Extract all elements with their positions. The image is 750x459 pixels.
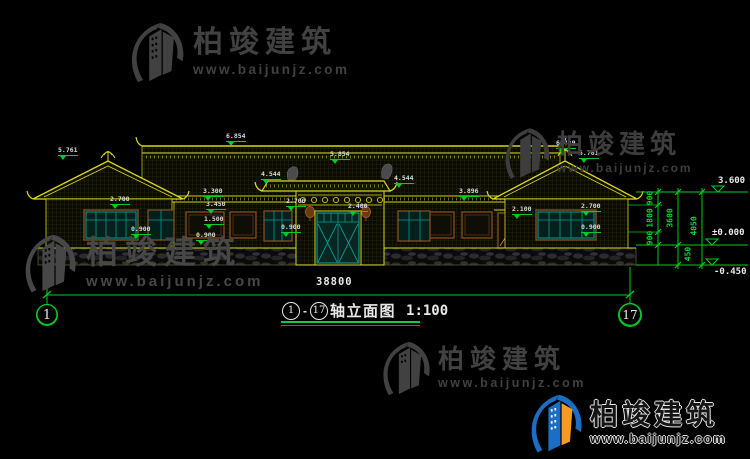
watermark-top-right: 柏竣建筑 www.baijunjz.com [502,124,693,182]
title-underline-2 [281,325,420,326]
elevation-marker: 4.544 [394,174,414,188]
brand-url: www.baijunjz.com [86,273,263,290]
brand-name: 柏竣建筑 [438,346,586,373]
title-axis-from-bubble: 1 [282,302,300,320]
brand-name: 柏竣建筑 [590,400,726,429]
level-symbols [706,186,724,265]
title-axis-to-bubble: 17 [310,302,328,320]
axis-bubble-1: 1 [36,304,58,326]
level-marker-value: 3.600 [718,176,745,186]
watermark-top-left: 柏竣建筑 www.baijunjz.com [128,18,350,86]
brand-logo-colored: 柏竣建筑 www.baijunjz.com [528,390,726,456]
brand-name: 柏竣建筑 [193,27,350,59]
elevation-marker: 4.544 [261,170,281,184]
brand-url: www.baijunjz.com [590,431,726,446]
elevation-marker: 6.854 [226,132,246,146]
elevation-marker: 3.450 [206,200,226,214]
brand-name: 柏竣建筑 [86,236,263,270]
elevation-marker: 0.900 [281,223,301,237]
vertical-dimension-value: 1800 [646,208,655,227]
title-underline [281,321,420,323]
vertical-dimension-value: 450 [684,247,693,261]
vertical-dimension-value: 4050 [690,216,699,235]
elevation-marker: 5.854 [330,150,350,164]
elevation-marker: 3.300 [203,187,223,201]
elevation-marker: 2.700 [286,197,306,211]
level-marker-value: ±0.000 [712,228,745,238]
brand-logo-icon [502,124,550,182]
brand-logo-icon [22,220,76,306]
vertical-dimension-value: 900 [646,191,655,205]
brand-logo-icon [380,332,430,404]
ridge-ornament [101,151,115,161]
brand-logo-icon [528,390,582,456]
brand-url: www.baijunjz.com [438,376,586,390]
brand-url: www.baijunjz.com [557,161,693,175]
elevation-marker: 3.896 [459,187,479,201]
watermark-middle: 柏竣建筑 www.baijunjz.com [22,220,263,306]
total-width-dimension: 38800 [316,276,353,288]
title-text: 轴立面图 [330,300,396,321]
vertical-dimension-value: 900 [646,231,655,245]
brand-logo-icon [128,18,184,86]
elevation-marker: 2.700 [581,202,601,216]
cad-canvas: 38800 1 17 1 - 17 轴立面图 1:100 柏竣建筑 www.ba… [0,0,750,459]
title-scale: 1:100 [406,303,448,319]
elevation-marker: 2.700 [110,195,130,209]
level-marker-value: -0.450 [714,267,747,277]
brand-url: www.baijunjz.com [193,62,350,77]
brand-name: 柏竣建筑 [557,131,693,158]
elevation-marker: 5.761 [58,146,78,160]
vertical-dimension-value: 3600 [666,208,675,227]
elevation-marker: 0.900 [581,223,601,237]
elevation-marker: 2.400 [348,202,368,216]
elevation-marker: 2.100 [512,205,532,219]
title-separator: - [303,304,307,318]
drawing-title: 1 - 17 轴立面图 1:100 [282,300,448,321]
axis-bubble-17: 17 [618,303,642,327]
main-door [315,211,361,265]
